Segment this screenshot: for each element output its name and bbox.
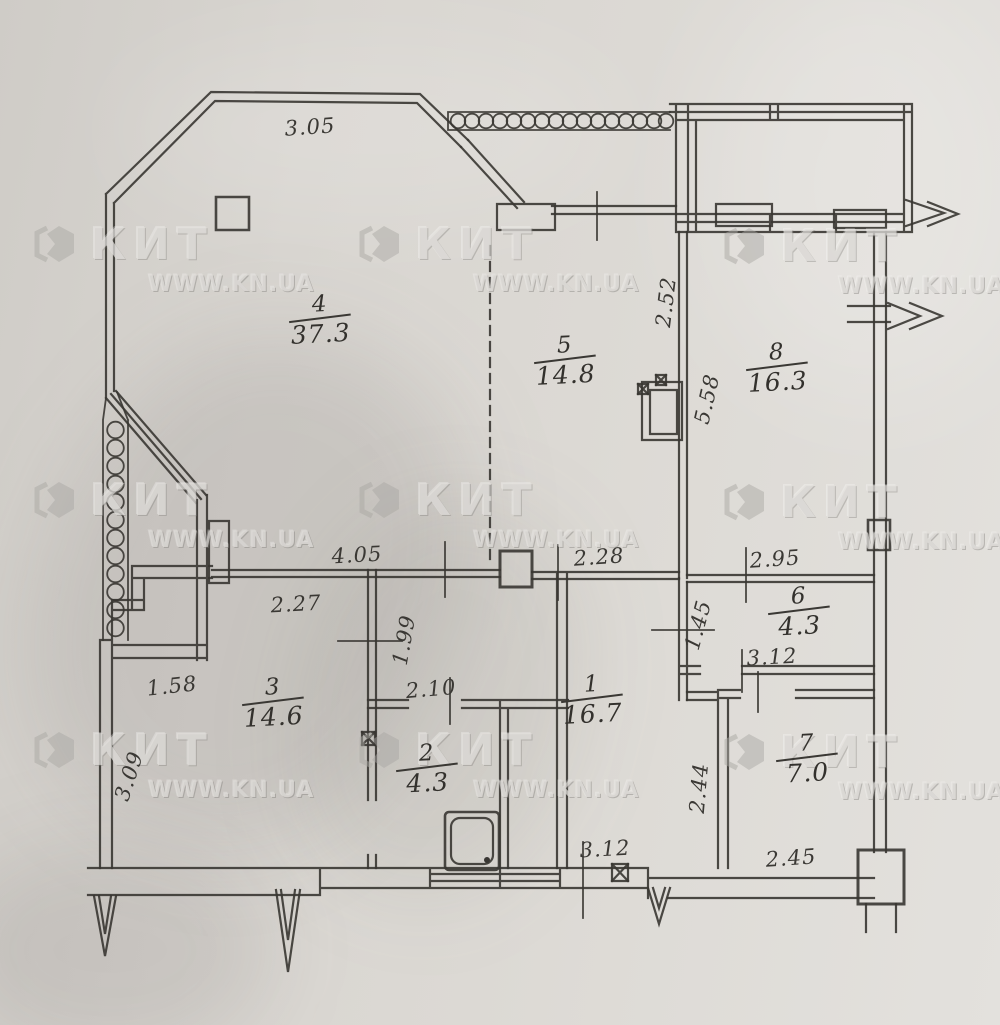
dimension-label: 2.95 bbox=[749, 545, 801, 572]
dimension-label: 4.05 bbox=[331, 542, 383, 569]
room-number: 5 bbox=[556, 333, 572, 358]
room-label: 2 4.3 bbox=[395, 740, 460, 799]
balcony-railing-left bbox=[103, 392, 128, 640]
room-number: 7 bbox=[798, 731, 814, 756]
dimension-label: 3.12 bbox=[746, 644, 798, 671]
dimension-label: 2.28 bbox=[573, 543, 625, 570]
room-area: 4.3 bbox=[406, 769, 450, 797]
room-area: 14.8 bbox=[535, 361, 596, 390]
vent-shaft bbox=[638, 375, 682, 440]
dimension-label: 2.10 bbox=[405, 675, 458, 703]
room-number: 6 bbox=[790, 584, 806, 609]
room-area: 7.0 bbox=[786, 759, 830, 787]
room-number: 4 bbox=[311, 292, 327, 317]
dimension-label: 3.05 bbox=[284, 113, 336, 140]
room-number: 1 bbox=[583, 672, 599, 697]
room-label: 7 7.0 bbox=[775, 730, 840, 789]
room-label: 8 16.3 bbox=[745, 339, 810, 398]
room-label: 6 4.3 bbox=[767, 583, 832, 642]
room-area: 37.3 bbox=[290, 320, 351, 349]
floor-plan-photo: КИТ WWW.KN.UA КИТ WWW.KN.UA КИТ bbox=[0, 0, 1000, 1025]
dimension-label: 2.44 bbox=[685, 762, 713, 815]
balcony-railing-top bbox=[448, 112, 673, 130]
room-number: 2 bbox=[418, 741, 434, 766]
room-label: 5 14.8 bbox=[533, 332, 598, 391]
floor-plan-drawing bbox=[0, 0, 1000, 1025]
room-label: 3 14.6 bbox=[241, 674, 306, 733]
dimension-label: 2.45 bbox=[765, 844, 817, 871]
room-number: 8 bbox=[768, 340, 784, 365]
room-number: 3 bbox=[264, 675, 280, 700]
dimension-label: 3.12 bbox=[579, 836, 631, 863]
dimension-label: 2.27 bbox=[270, 591, 322, 618]
room-area: 16.3 bbox=[747, 368, 808, 397]
loggia-top-right bbox=[670, 104, 912, 232]
room-area: 14.6 bbox=[243, 703, 304, 732]
room-area: 16.7 bbox=[562, 700, 623, 729]
room-area: 4.3 bbox=[778, 612, 822, 640]
room-label: 1 16.7 bbox=[560, 671, 625, 730]
shower-tray bbox=[445, 812, 499, 870]
room-label: 4 37.3 bbox=[288, 291, 353, 350]
